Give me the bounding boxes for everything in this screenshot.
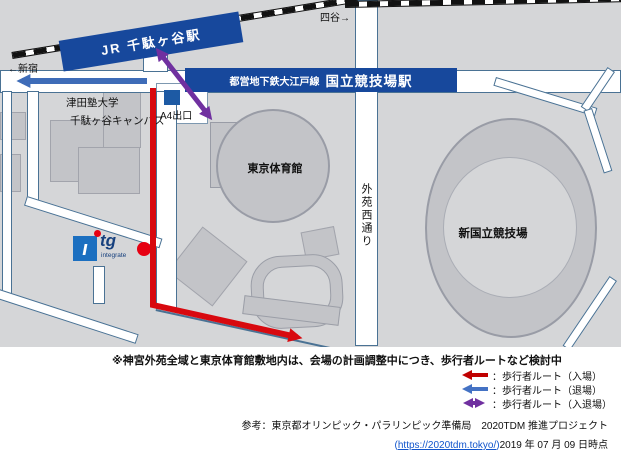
- legend-arrow-both-icon: [452, 397, 492, 409]
- planning-note: ※神宮外苑全域と東京体育館敷地内は、会場の計画調整中につき、歩行者ルートなど検討…: [112, 352, 562, 368]
- university-label-2: 千駄ヶ谷キャンパス: [70, 113, 165, 128]
- itg-logo-letters-tg: tg: [100, 231, 116, 251]
- legend-row-enter: ：歩行者ルート（入場）: [452, 368, 612, 382]
- road-stub-bottom: [93, 266, 105, 304]
- direction-yotsuya: 四谷→: [320, 9, 350, 24]
- subway-line-label: 都営地下鉄大江戸線: [230, 73, 320, 88]
- legend-label-enter: ：歩行者ルート（入場）: [492, 368, 602, 383]
- jr-station-label: JR 千駄ヶ谷駅: [100, 24, 203, 59]
- reference-source: (https://2020tdm.tokyo/)2019 年 07 月 09 日…: [395, 436, 608, 451]
- direction-shinjuku: ←新宿: [8, 60, 38, 75]
- building-diamond: [167, 226, 247, 306]
- road-gaien-nishi: [355, 0, 378, 346]
- university-label-1: 津田塾大学: [66, 95, 119, 110]
- tdm-site-link[interactable]: https://2020tdm.tokyo/: [398, 440, 496, 451]
- legend-arrow-enter-icon: [452, 369, 492, 381]
- road-diagonal-bottom-left: [0, 288, 139, 344]
- itg-logo-subtext: integrate: [101, 252, 126, 259]
- itg-logo: ı tg integrate: [70, 228, 140, 264]
- gymnasium-label: 東京体育館: [233, 160, 317, 176]
- legend-row-exit: ：歩行者ルート（退場）: [452, 382, 612, 396]
- itg-logo-square: ı: [73, 236, 97, 261]
- stadium-label: 新国立競技場: [448, 225, 538, 241]
- building-campus-3: [78, 147, 140, 194]
- railway-jr-line-top: [345, 0, 621, 8]
- subway-station-banner: 都営地下鉄大江戸線 国立競技場駅: [185, 68, 457, 92]
- road-right-c: [583, 108, 612, 174]
- page: JR 千駄ヶ谷駅 都営地下鉄大江戸線 国立競技場駅 ←新宿 四谷→ A4出口 津…: [0, 0, 621, 456]
- reference-date: 2019 年 07 月 09 日時点: [500, 440, 608, 451]
- reference-credit: 参考：東京都オリンピック・パラリンピック準備局 2020TDM 推進プロジェクト: [242, 417, 608, 432]
- legend-arrow-exit-icon: [452, 383, 492, 395]
- legend-label-exit: ：歩行者ルート（退場）: [492, 382, 602, 397]
- route-legend: ：歩行者ルート（入場） ：歩行者ルート（退場） ：歩行者ルート（入退場）: [452, 368, 612, 410]
- subway-station-label: 国立競技場駅: [326, 70, 413, 90]
- legend-row-both: ：歩行者ルート（入退場）: [452, 396, 612, 410]
- legend-label-both: ：歩行者ルート（入退場）: [492, 396, 612, 411]
- itg-logo-letter-i: ı: [82, 239, 88, 259]
- road-left-edge: [2, 91, 12, 296]
- map-canvas: JR 千駄ヶ谷駅 都営地下鉄大江戸線 国立競技場駅 ←新宿 四谷→ A4出口 津…: [0, 0, 621, 347]
- road-left-vertical: [27, 91, 39, 203]
- gaien-road-label: 外苑西通り: [358, 183, 374, 248]
- location-marker-red-dot: [137, 242, 151, 256]
- exit-a4-square: [164, 90, 180, 105]
